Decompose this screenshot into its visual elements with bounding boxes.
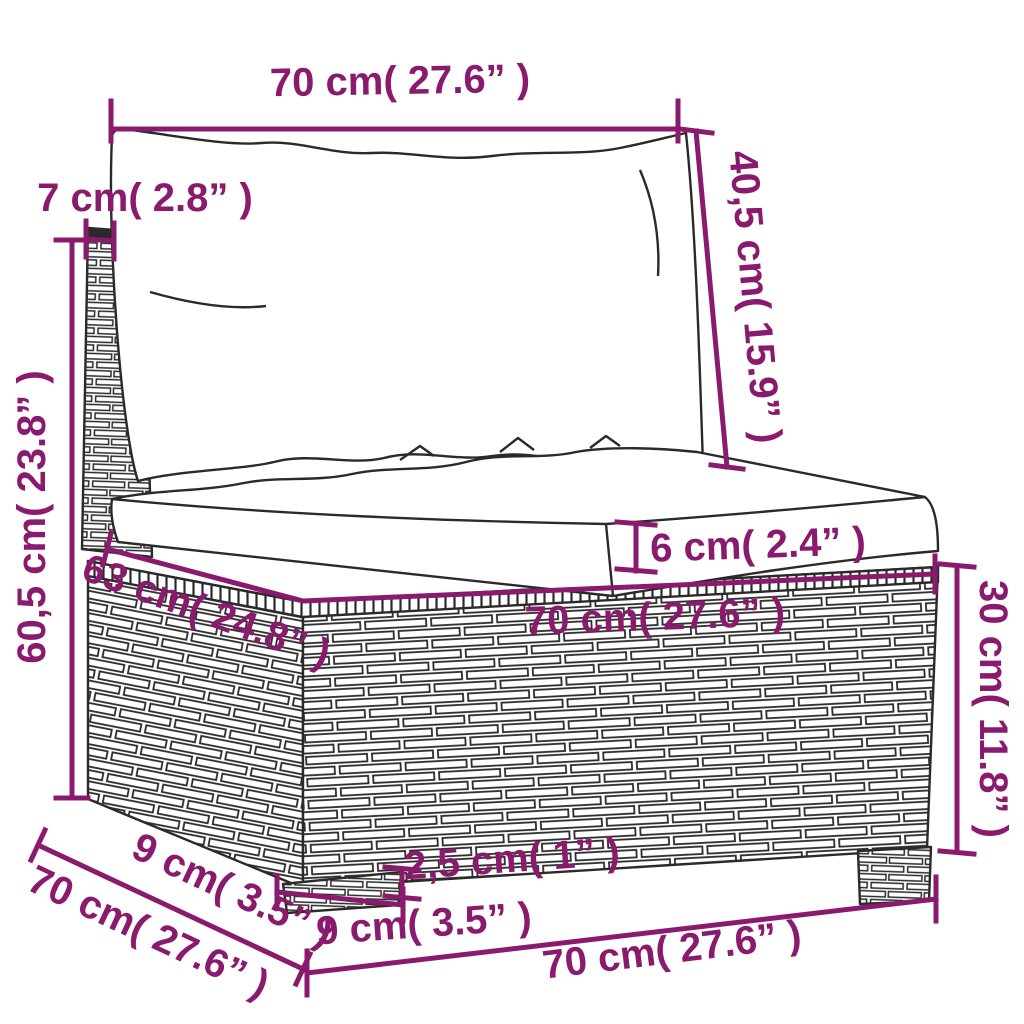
dim-total-height: 60,5 cm( 23.8” ) [10, 240, 88, 798]
dim-base-height: 30 cm( 11.8” ) [940, 564, 1015, 854]
dim-top-width: 70 cm( 27.6” ) [111, 57, 678, 141]
dim-cushion-thickness: 6 cm( 2.4” ) [617, 519, 866, 572]
dim-cushion-thickness-label: 6 cm( 2.4” ) [649, 519, 866, 570]
dim-base-height-label: 30 cm( 11.8” ) [971, 580, 1015, 838]
dim-base-width-label: 70 cm( 27.6” ) [540, 912, 804, 987]
dim-seat-width-label: 70 cm( 27.6” ) [524, 590, 786, 643]
product-dimension-diagram: 70 cm( 27.6” ) 40,5 cm( 15.9” ) 7 cm( 2.… [0, 0, 1024, 1024]
dim-top-width-label: 70 cm( 27.6” ) [270, 57, 531, 106]
dim-total-height-label: 60,5 cm( 23.8” ) [10, 370, 54, 664]
dim-back-depth-label: 7 cm( 2.8” ) [37, 176, 253, 220]
dim-back-height-label: 40,5 cm( 15.9” ) [720, 149, 789, 445]
sofa-dimension-drawing: 70 cm( 27.6” ) 40,5 cm( 15.9” ) 7 cm( 2.… [0, 0, 1024, 1024]
right-foot [858, 847, 931, 904]
